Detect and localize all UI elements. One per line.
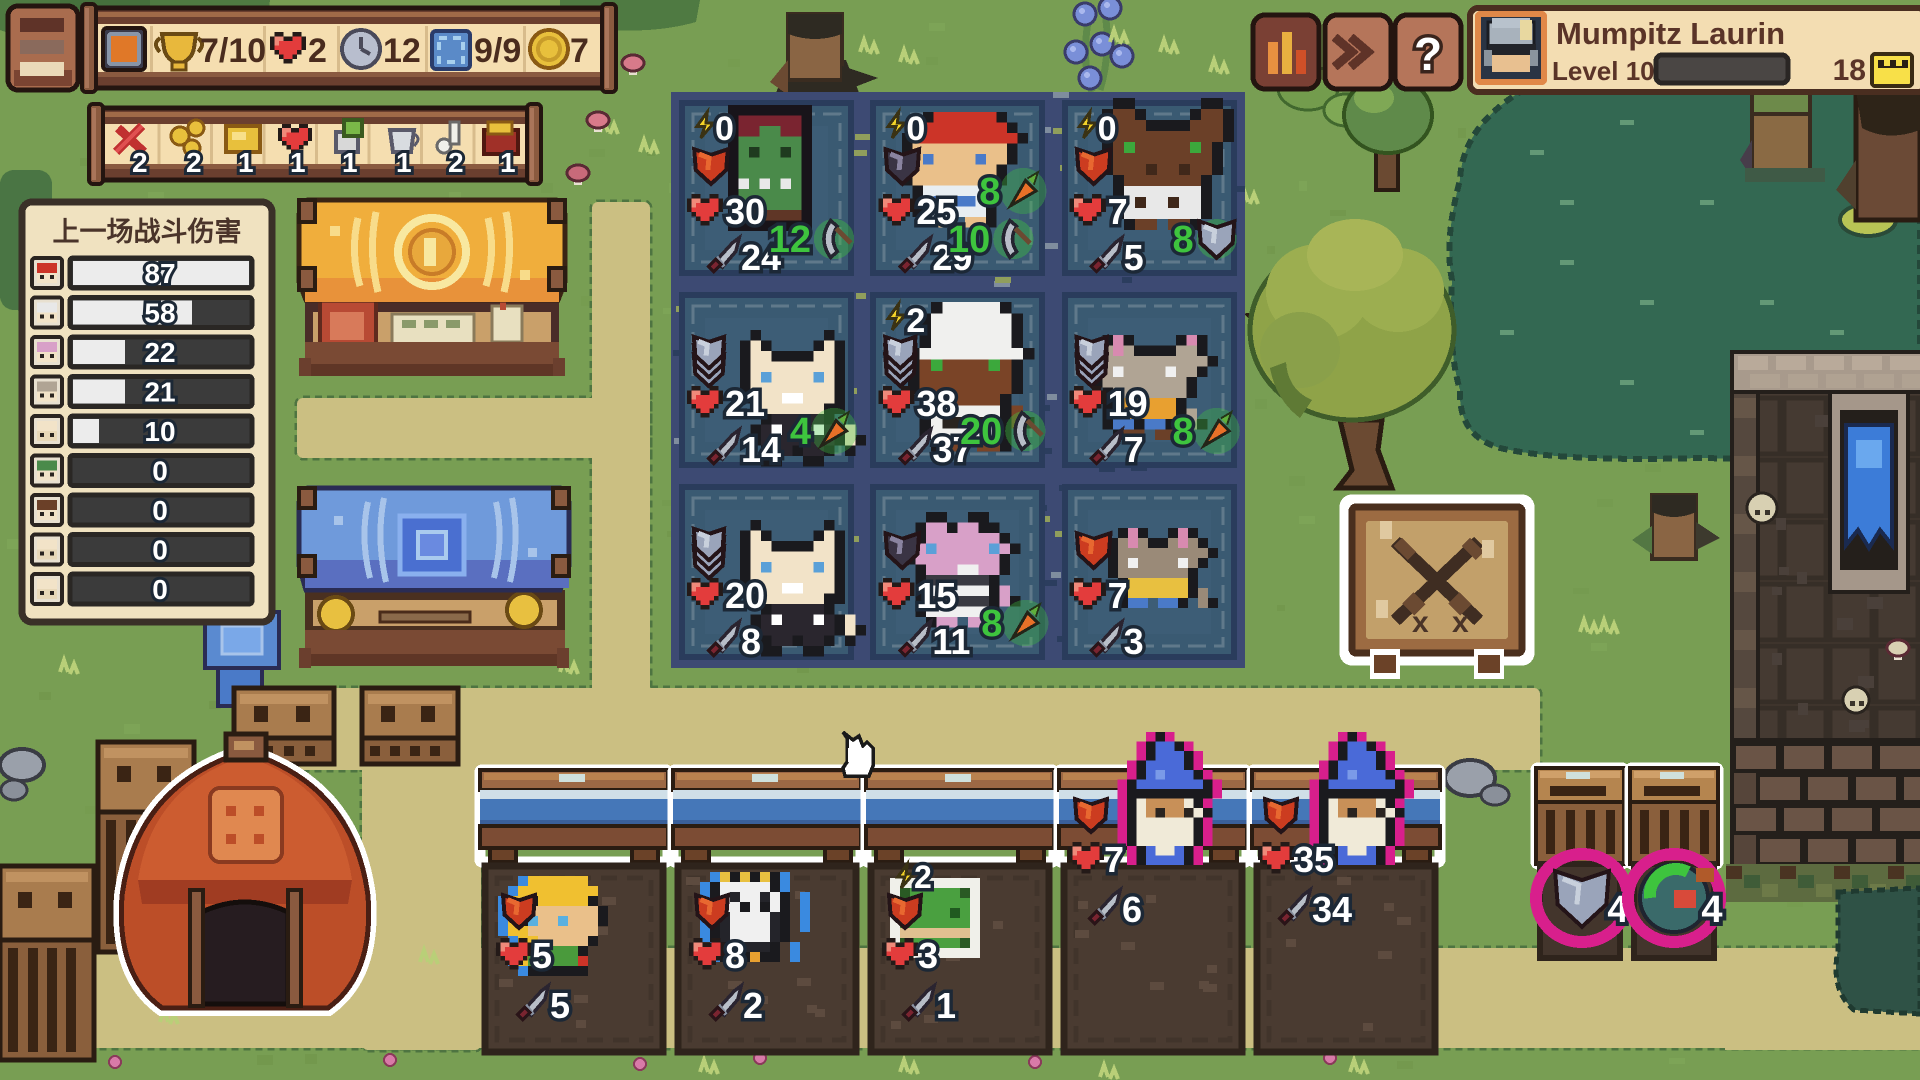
svg-text:21: 21 bbox=[725, 383, 765, 424]
svg-text:18: 18 bbox=[1833, 54, 1866, 87]
svg-text:34: 34 bbox=[1312, 889, 1352, 930]
svg-text:?: ? bbox=[1414, 28, 1442, 80]
svg-text:2: 2 bbox=[743, 985, 763, 1026]
svg-text:0: 0 bbox=[715, 110, 734, 148]
svg-text:20: 20 bbox=[960, 411, 1002, 453]
svg-text:3: 3 bbox=[918, 935, 938, 976]
svg-text:x: x bbox=[1412, 606, 1429, 639]
svg-text:Mumpitz Laurin: Mumpitz Laurin bbox=[1556, 16, 1785, 51]
svg-text:2: 2 bbox=[132, 147, 148, 178]
svg-text:2: 2 bbox=[914, 859, 932, 895]
svg-text:21: 21 bbox=[144, 377, 175, 408]
svg-text:1: 1 bbox=[500, 147, 516, 178]
svg-text:35: 35 bbox=[1294, 839, 1334, 880]
svg-text:1: 1 bbox=[342, 147, 358, 178]
svg-text:3: 3 bbox=[1124, 621, 1144, 662]
svg-text:2: 2 bbox=[906, 302, 925, 340]
svg-text:8: 8 bbox=[725, 935, 745, 976]
svg-text:10: 10 bbox=[144, 416, 175, 447]
svg-text:12: 12 bbox=[769, 219, 811, 261]
svg-text:2: 2 bbox=[448, 147, 464, 178]
svg-text:12: 12 bbox=[383, 32, 421, 70]
svg-text:9/9: 9/9 bbox=[474, 32, 521, 70]
svg-text:8: 8 bbox=[1173, 411, 1194, 453]
svg-text:7: 7 bbox=[1104, 839, 1124, 880]
svg-text:0: 0 bbox=[906, 110, 925, 148]
svg-text:22: 22 bbox=[144, 337, 175, 368]
svg-text:5: 5 bbox=[1124, 237, 1144, 278]
svg-text:7: 7 bbox=[1124, 429, 1144, 470]
svg-text:87: 87 bbox=[144, 258, 175, 289]
svg-text:1: 1 bbox=[238, 147, 254, 178]
svg-text:14: 14 bbox=[741, 429, 781, 470]
svg-text:1: 1 bbox=[936, 985, 956, 1026]
svg-text:5: 5 bbox=[532, 935, 552, 976]
svg-text:7: 7 bbox=[570, 32, 589, 70]
svg-text:11: 11 bbox=[932, 621, 970, 662]
svg-text:0: 0 bbox=[152, 495, 168, 526]
svg-text:Level 10: Level 10 bbox=[1552, 56, 1655, 86]
svg-text:0: 0 bbox=[152, 574, 168, 605]
svg-text:上一场战斗伤害: 上一场战斗伤害 bbox=[53, 216, 242, 247]
svg-text:7: 7 bbox=[1108, 575, 1128, 616]
svg-text:8: 8 bbox=[981, 603, 1002, 645]
svg-text:1: 1 bbox=[396, 147, 412, 178]
svg-text:x: x bbox=[1452, 606, 1469, 639]
svg-text:2: 2 bbox=[186, 147, 202, 178]
svg-text:4: 4 bbox=[790, 411, 811, 453]
svg-text:0: 0 bbox=[152, 456, 168, 487]
svg-text:7: 7 bbox=[1108, 191, 1128, 232]
svg-text:0: 0 bbox=[152, 535, 168, 566]
svg-text:8: 8 bbox=[741, 621, 761, 662]
svg-text:8: 8 bbox=[979, 171, 1000, 213]
svg-text:5: 5 bbox=[550, 985, 570, 1026]
svg-text:1: 1 bbox=[290, 147, 306, 178]
svg-text:6: 6 bbox=[1122, 889, 1142, 930]
svg-text:58: 58 bbox=[144, 298, 175, 329]
svg-text:30: 30 bbox=[725, 191, 765, 232]
svg-text:4: 4 bbox=[1701, 889, 1722, 931]
svg-text:20: 20 bbox=[725, 575, 765, 616]
svg-text:0: 0 bbox=[1098, 110, 1117, 148]
svg-text:2: 2 bbox=[308, 32, 327, 70]
svg-text:19: 19 bbox=[1108, 383, 1148, 424]
svg-text:7/10: 7/10 bbox=[200, 32, 266, 70]
svg-text:10: 10 bbox=[948, 219, 990, 261]
svg-text:15: 15 bbox=[916, 575, 956, 616]
svg-text:38: 38 bbox=[916, 383, 956, 424]
svg-text:8: 8 bbox=[1173, 219, 1194, 261]
